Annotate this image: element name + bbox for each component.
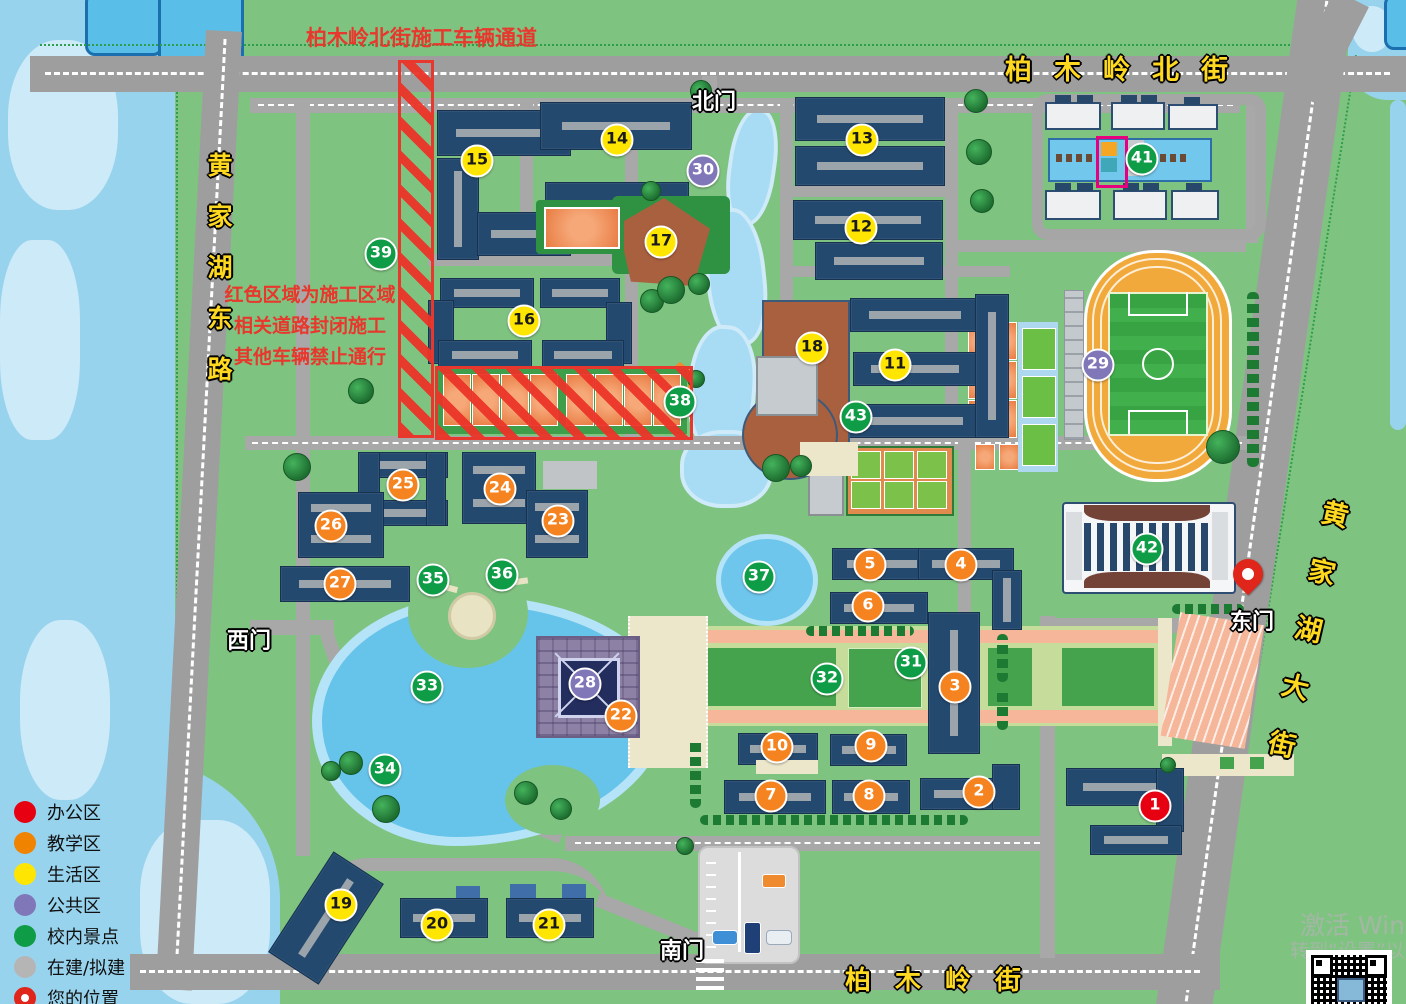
map-marker-19[interactable]: 19 [325, 889, 358, 922]
qr-finder [1311, 955, 1333, 977]
legend-label: 教学区 [47, 830, 101, 856]
map-marker-33[interactable]: 33 [411, 671, 444, 704]
map-marker-10[interactable]: 10 [761, 731, 794, 764]
tree-icon [1206, 430, 1240, 464]
tree-icon [970, 189, 994, 213]
construction-highlight-box [1096, 136, 1128, 188]
tree-icon [283, 453, 311, 481]
tennis-court [917, 481, 947, 509]
map-marker-3[interactable]: 3 [939, 671, 972, 704]
hedge-row [700, 815, 968, 825]
roof [552, 289, 608, 297]
roof [1003, 578, 1011, 622]
planned-building [1171, 190, 1219, 220]
roof [456, 129, 551, 137]
building-annex-gray [756, 356, 818, 416]
construction-swatch [14, 956, 36, 978]
roof-chip [1186, 183, 1202, 191]
planned-building [1045, 102, 1101, 130]
map-marker-23[interactable]: 23 [542, 505, 575, 538]
construction-corridor [398, 60, 434, 438]
gate-label-north: 北门 [692, 84, 736, 116]
map-marker-14[interactable]: 14 [601, 124, 634, 157]
building [440, 278, 534, 308]
tree-icon [550, 798, 572, 820]
map-marker-21[interactable]: 21 [533, 909, 566, 942]
map-marker-11[interactable]: 11 [879, 349, 912, 382]
roof [454, 171, 462, 247]
office-swatch [14, 801, 36, 823]
car-blue [712, 930, 738, 945]
plaza-strip [756, 760, 818, 774]
qr-finder-dot [1370, 960, 1376, 966]
street-name-north: 柏木岭北街 [1005, 48, 1250, 87]
teaching-swatch [14, 832, 36, 854]
map-marker-8[interactable]: 8 [853, 780, 886, 813]
roof-chip [1184, 97, 1200, 105]
pond-northeast [1384, 0, 1406, 50]
tennis-pad [1018, 322, 1058, 472]
car-white [766, 930, 792, 945]
map-marker-30[interactable]: 30 [687, 155, 720, 188]
tennis-court [1022, 424, 1056, 466]
legend-item: 生活区 [14, 858, 125, 889]
construction-route-label: 柏木岭北街施工车辆通道 [306, 22, 537, 52]
roof-chip [1121, 95, 1137, 103]
map-marker-36[interactable]: 36 [486, 559, 519, 592]
map-marker-32[interactable]: 32 [811, 663, 844, 696]
map-marker-25[interactable]: 25 [387, 469, 420, 502]
parking-divider [738, 852, 741, 952]
campus-road-dashes [575, 842, 1040, 844]
tree-icon [641, 181, 661, 201]
tennis-court [851, 481, 881, 509]
map-marker-22[interactable]: 22 [605, 700, 638, 733]
building [426, 452, 446, 526]
legend-label: 公共区 [47, 892, 101, 918]
shallow-water [20, 620, 110, 800]
planned-building [1045, 190, 1101, 220]
legend-item: 校内景点 [14, 920, 125, 951]
construction-zone-courts [435, 366, 693, 440]
roof [988, 312, 996, 420]
gate-label-east: 东门 [1230, 604, 1274, 636]
pitch-penalty-box [1128, 410, 1188, 434]
scenic-swatch [14, 925, 36, 947]
building [815, 242, 943, 280]
map-marker-17[interactable]: 17 [645, 226, 678, 259]
map-marker-18[interactable]: 18 [796, 332, 829, 365]
your-location-swatch [14, 987, 36, 1004]
map-marker-27[interactable]: 27 [324, 568, 357, 601]
map-marker-42[interactable]: 42 [1131, 533, 1164, 566]
gate-label-west: 西门 [227, 623, 271, 655]
map-marker-37[interactable]: 37 [743, 561, 776, 594]
shallow-water [0, 240, 80, 440]
parking-small [543, 461, 597, 489]
qr-center-image [1337, 978, 1365, 1002]
car-orange [762, 874, 786, 888]
legend-label: 校内景点 [47, 923, 119, 949]
map-marker-7[interactable]: 7 [755, 780, 788, 813]
legend-label: 您的位置 [47, 985, 119, 1004]
campus-road [958, 240, 1246, 252]
basketball-court [544, 207, 620, 249]
gym-roof-band [1084, 572, 1210, 588]
hedge-column [1247, 292, 1259, 467]
map-marker-41[interactable]: 41 [1126, 143, 1159, 176]
map-marker-34[interactable]: 34 [369, 754, 402, 787]
hedge-row [806, 626, 914, 636]
roof [867, 417, 962, 425]
qr-code [1306, 950, 1392, 1004]
tree-icon [339, 751, 363, 775]
building [992, 570, 1022, 630]
roof [817, 115, 924, 123]
tree-icon [676, 837, 694, 855]
roof-chip [1055, 95, 1071, 103]
tennis-court [884, 451, 914, 479]
legend-list: 办公区教学区生活区公共区校内景点在建/拟建您的位置 [14, 796, 125, 1004]
map-marker-38[interactable]: 38 [664, 386, 697, 419]
legend-item: 办公区 [14, 796, 125, 827]
tree-icon [372, 795, 400, 823]
roof [817, 162, 924, 170]
legend-item: 公共区 [14, 889, 125, 920]
pitch-center-circle [1142, 348, 1174, 380]
map-marker-29[interactable]: 29 [1082, 349, 1115, 382]
roof [869, 311, 961, 319]
tree-icon [1160, 757, 1176, 773]
tennis-court [917, 451, 947, 479]
building [975, 294, 1009, 438]
tennis-court [884, 481, 914, 509]
highlight-orange [1101, 142, 1117, 156]
building [1090, 825, 1182, 855]
gym-wing [1212, 512, 1228, 580]
tree-icon [964, 89, 988, 113]
tennis-court [1022, 376, 1056, 418]
planned-building [1113, 190, 1167, 220]
gym-roof-band [1084, 505, 1210, 521]
living-swatch [14, 863, 36, 885]
highlight-teal [1101, 158, 1117, 172]
map-marker-2[interactable]: 2 [963, 776, 996, 809]
tree-icon [321, 761, 341, 781]
gate-label-south: 南门 [660, 933, 704, 965]
legend-item: 在建/拟建 [14, 951, 125, 982]
lawn-square [1220, 757, 1234, 769]
qr-finder [1365, 955, 1387, 977]
pitch-penalty-box [1128, 292, 1188, 316]
map-marker-28[interactable]: 28 [569, 668, 602, 701]
tennis-court [1022, 328, 1056, 370]
building [853, 352, 977, 386]
roof-chip [1055, 183, 1071, 191]
legend-label: 办公区 [47, 799, 101, 825]
map-marker-31[interactable]: 31 [895, 647, 928, 680]
roof [1104, 836, 1169, 844]
roof [311, 504, 372, 512]
legend-label: 生活区 [47, 861, 101, 887]
map-marker-9[interactable]: 9 [855, 730, 888, 763]
map-marker-15[interactable]: 15 [461, 145, 494, 178]
legend: 办公区教学区生活区公共区校内景点在建/拟建您的位置 [14, 796, 125, 1004]
roof [454, 289, 520, 297]
map-marker-24[interactable]: 24 [484, 473, 517, 506]
roof-chip [1143, 183, 1159, 191]
map-marker-4[interactable]: 4 [945, 549, 978, 582]
axis-lawn [1062, 648, 1154, 706]
campus-road [958, 436, 971, 621]
planned-building [1111, 102, 1165, 130]
map-marker-13[interactable]: 13 [846, 124, 879, 157]
pond-northwest [85, 0, 163, 56]
map-marker-35[interactable]: 35 [417, 564, 450, 597]
public-swatch [14, 894, 36, 916]
map-marker-39[interactable]: 39 [365, 238, 398, 271]
roof-chip [1141, 95, 1157, 103]
tree-icon [762, 454, 790, 482]
campus-road [780, 186, 945, 197]
pool-detail [1056, 154, 1096, 162]
map-marker-1[interactable]: 1 [1139, 790, 1172, 823]
building [992, 764, 1020, 810]
roof [834, 257, 925, 265]
map-marker-43[interactable]: 43 [840, 401, 873, 434]
small-court [975, 444, 995, 470]
tennis-pad-south [846, 446, 954, 516]
hedge-column [997, 688, 1008, 730]
gym-wing [1066, 512, 1082, 580]
planned-building [1168, 104, 1218, 130]
roof-chip [1077, 183, 1093, 191]
tree-icon [657, 276, 685, 304]
map-marker-12[interactable]: 12 [845, 212, 878, 245]
tree-icon [348, 378, 374, 404]
qr-finder-dot [1316, 960, 1322, 966]
legend-label: 在建/拟建 [47, 954, 125, 980]
roof-chip [1077, 95, 1093, 103]
tree-icon [966, 139, 992, 165]
tree-icon [790, 455, 812, 477]
legend-item: 您的位置 [14, 982, 125, 1004]
legend-item: 教学区 [14, 827, 125, 858]
street-name-west: 黄家湖东路 [200, 152, 236, 407]
hedge-column [690, 738, 701, 808]
map-marker-16[interactable]: 16 [508, 305, 541, 338]
map-marker-5[interactable]: 5 [854, 549, 887, 582]
roof [554, 351, 612, 359]
campus-map: 柏木岭北街施工车辆通道 红色区域为施工区域 相关道路封闭施工 其他车辆禁止通行 … [0, 0, 1406, 1004]
tree-icon [514, 781, 538, 805]
garden-circle [448, 592, 496, 640]
map-marker-20[interactable]: 20 [421, 909, 454, 942]
hedge-column [997, 634, 1008, 682]
axis-lawn [988, 648, 1032, 706]
water-east-edge [1390, 100, 1406, 430]
roof [452, 351, 518, 359]
bus-navy [744, 922, 761, 954]
map-marker-26[interactable]: 26 [315, 510, 348, 543]
building [850, 298, 980, 332]
tree-icon [688, 273, 710, 295]
map-marker-6[interactable]: 6 [852, 590, 885, 623]
small-court [999, 444, 1019, 470]
location-pin-hole [1240, 566, 1257, 583]
street-name-south: 柏木岭街 [845, 960, 1045, 997]
